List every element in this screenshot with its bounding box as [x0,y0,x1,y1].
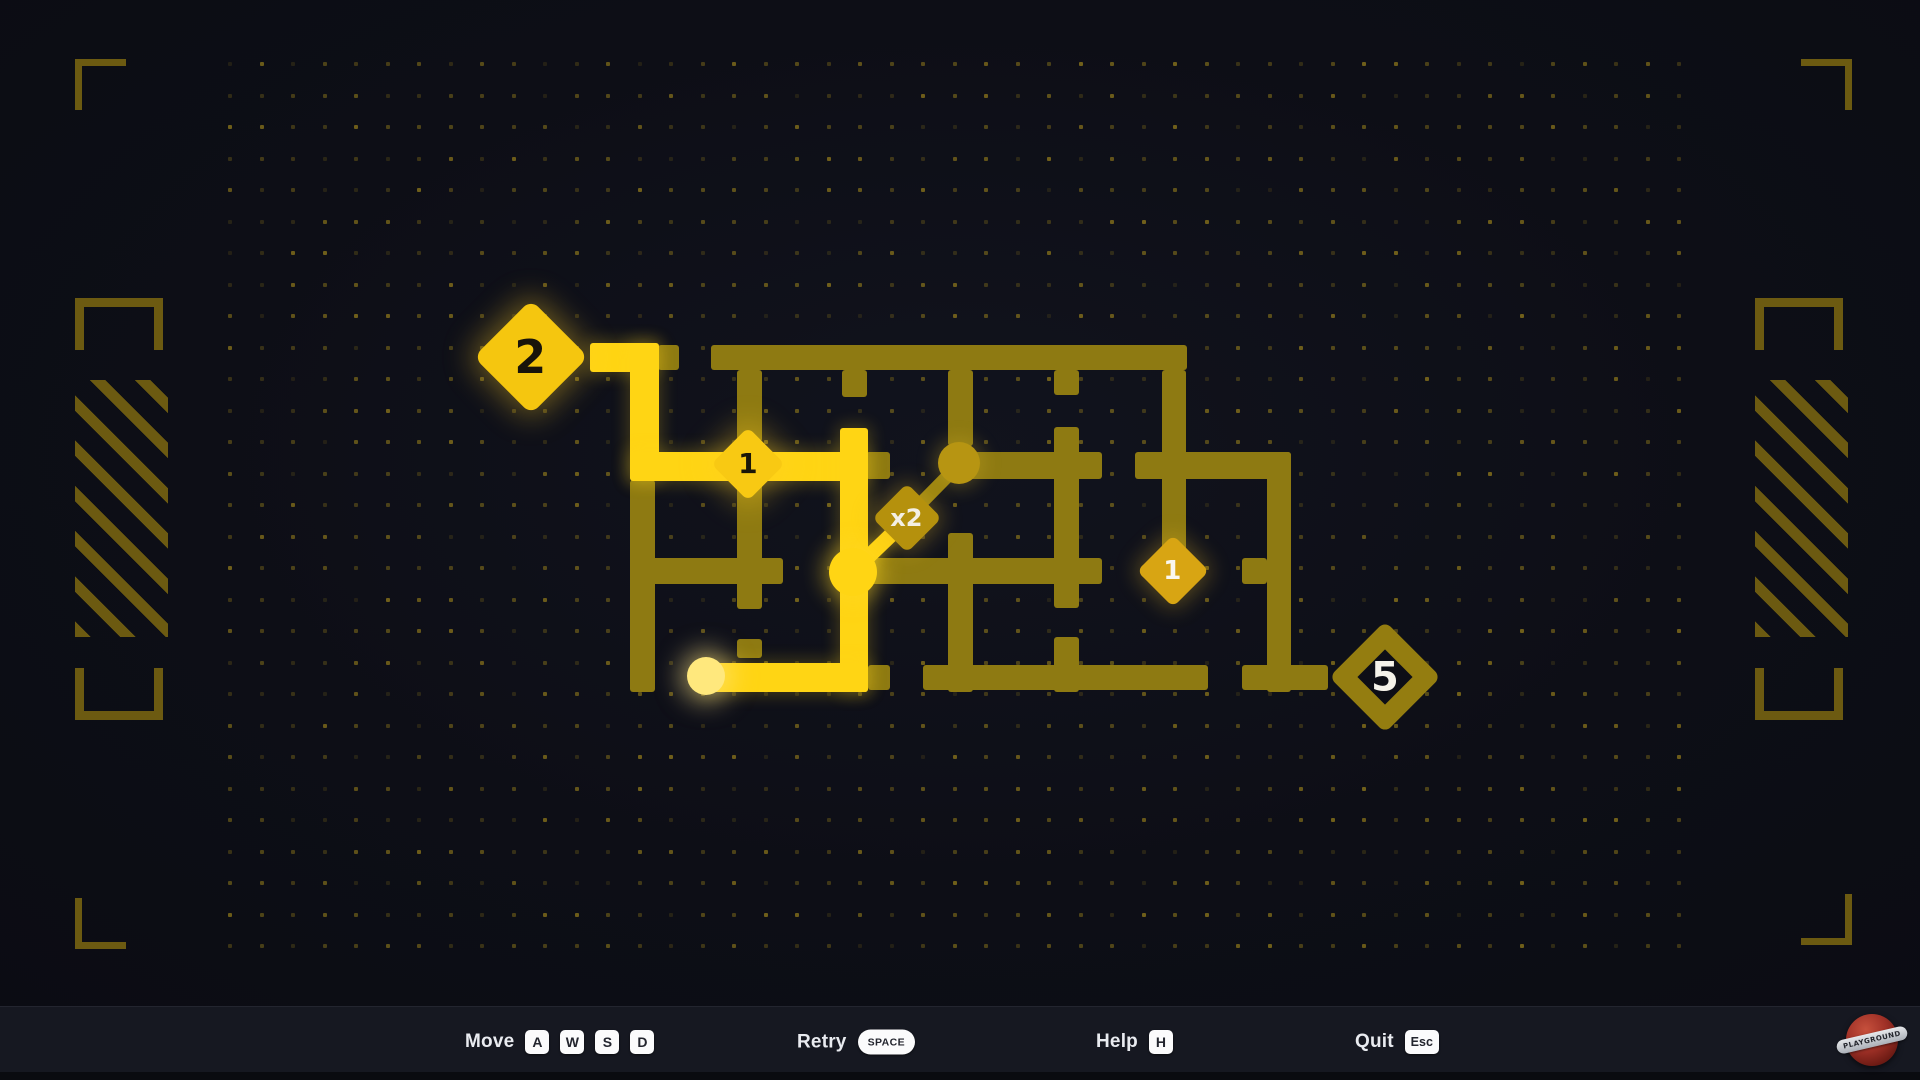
maze-node-value: 1 [738,450,757,478]
maze-node-diamond-1: 1 [711,427,785,501]
maze-corridor-dim [1267,452,1291,692]
controls-bar: MoveAWSDRetrySPACEHelpHQuitEsc [0,1006,1920,1080]
maze-corridor-dim [658,345,679,370]
player-marker-dot [687,657,725,695]
maze-board: 21x215 [0,0,1920,1080]
maze-corridor-dim [737,639,762,658]
maze-corridor-dim [923,665,1208,690]
maze-corridor-dim [630,480,655,692]
control-move: MoveAWSD [465,1030,654,1054]
maze-corridor-dim [868,665,890,690]
control-quit: QuitEsc [1355,1030,1439,1054]
maze-corridor-dim [866,452,890,479]
keycap-s: S [595,1030,619,1054]
maze-node-diamond-2: 2 [474,300,589,415]
maze-corridor-bright [702,663,868,692]
maze-junction-dot [829,548,877,596]
keycap-w: W [560,1030,584,1054]
playground-logo: PLAYGROUND [1846,1014,1898,1066]
game-screen: 21x215 MoveAWSDRetrySPACEHelpHQuitEsc PL… [0,0,1920,1080]
maze-junction-dot [938,442,980,484]
keycap-esc: Esc [1405,1030,1439,1054]
maze-node-value: 2 [515,334,547,380]
maze-corridor-dim [866,558,1102,584]
screen-bottom-edge [0,1072,1920,1080]
maze-node-value: 5 [1371,657,1399,697]
maze-node-value: x2 [891,506,923,530]
keycap-space: SPACE [858,1030,915,1055]
control-label-help: Help [1096,1031,1138,1053]
keycap-d: D [630,1030,654,1054]
keycap-a: A [525,1030,549,1054]
maze-corridor-dim [1054,370,1079,395]
control-help: HelpH [1096,1030,1173,1054]
maze-corridor-dim [711,345,1187,370]
maze-corridor-dim [842,370,867,397]
control-label-move: Move [465,1031,514,1053]
control-retry: RetrySPACE [797,1030,915,1055]
maze-corridor-dim [1242,558,1267,584]
maze-corridor-dim [948,370,973,446]
maze-node-diamond-1: 1 [1137,535,1209,607]
maze-node-value: 1 [1164,558,1182,584]
control-label-quit: Quit [1355,1031,1394,1053]
maze-corridor-dim [737,480,762,609]
control-label-retry: Retry [797,1031,847,1053]
maze-node-diamond-5: 5 [1329,621,1441,733]
maze-corridor-dim [1242,665,1328,690]
keycap-h: H [1149,1030,1173,1054]
